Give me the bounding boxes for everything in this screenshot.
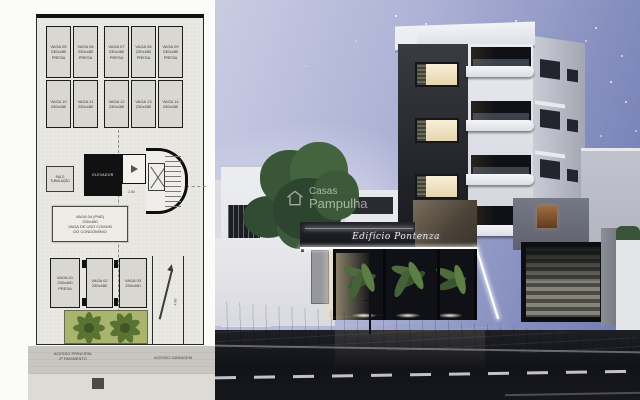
glass-storefront — [333, 249, 477, 320]
bronze-light-fixture — [537, 206, 557, 228]
sidewalk-marker — [92, 378, 104, 389]
stall-label-line: PRESA — [110, 55, 124, 60]
stall-label-line: PRESA — [52, 55, 66, 60]
parking-stall: VAGA 10230x480 — [46, 80, 71, 128]
stall-label-line: PRESA — [58, 286, 72, 291]
side-ledge — [535, 150, 565, 158]
parking-stall: VAGA 07230x480PRESA — [104, 26, 129, 78]
watermark-line2: Pampulha — [309, 197, 368, 210]
side-window — [540, 109, 560, 130]
stall-label-line: 230x480 — [78, 104, 93, 109]
stall-label-line: PRESA — [164, 55, 178, 60]
parking-stall: VAGA 01230x480PRESA — [50, 258, 80, 308]
stall-label-line: 230x480 — [136, 104, 151, 109]
listing-image: VAGA 05230x480PRESAVAGA 06230x480PRESAVA… — [0, 0, 640, 400]
glass-railing — [473, 167, 529, 174]
parking-row-top: VAGA 05230x480PRESAVAGA 06230x480PRESAVA… — [46, 26, 186, 78]
wall-glow — [321, 250, 333, 320]
side-window — [567, 119, 578, 133]
side-window — [567, 69, 578, 83]
pne-stall-note: VAGA 04 (PNE)230x480VAGA DE USO COMUMDO … — [52, 206, 128, 242]
sapling-stake — [365, 300, 374, 301]
window-louver — [417, 120, 426, 141]
ramp-dimension: 4.80 — [174, 299, 178, 306]
stall-label-line: 230x480 — [92, 283, 107, 288]
parking-stall: VAGA 02230x480 — [86, 258, 113, 308]
side-window — [540, 59, 560, 80]
palm-plant — [355, 263, 358, 266]
window-louver — [417, 64, 426, 85]
access-main-line2: 2º PAVIMENTO — [38, 356, 108, 361]
stall-label-line: 230x480 — [109, 104, 124, 109]
balcony-slab — [466, 120, 534, 131]
parking-stall: VAGA 05230x480PRESA — [46, 26, 71, 78]
side-window — [567, 169, 578, 183]
balcony-slab — [466, 66, 534, 77]
stall-label-line: 230x480 — [163, 104, 178, 109]
lit-window — [415, 174, 459, 199]
stair-dimension: 2.80 — [128, 190, 135, 194]
stall-label-line: PRESA — [79, 55, 93, 60]
boundary-wall-right — [616, 240, 640, 332]
parking-stall: VAGA 13230x480 — [131, 80, 156, 128]
uplight — [437, 313, 463, 318]
palm-plant — [445, 265, 448, 268]
parking-stall: VAGA 09230x480PRESA — [158, 26, 183, 78]
garden-plants-illustration — [65, 311, 149, 345]
mullion — [333, 249, 336, 320]
street-sapling — [369, 292, 371, 334]
elevator-shaft: ELEVADOR — [84, 154, 122, 196]
stall-label-line: 230x480 — [125, 283, 140, 288]
column — [82, 298, 86, 306]
side-ledge — [535, 100, 565, 108]
stars — [395, 15, 397, 17]
window-louver — [417, 176, 426, 197]
stair-treads — [165, 155, 181, 207]
lit-window — [415, 118, 459, 143]
parking-stall: VAGA 03230x480 — [119, 258, 147, 308]
mullion — [383, 249, 386, 320]
mullion — [437, 249, 440, 320]
column — [114, 298, 118, 306]
parking-row-bottom: VAGA 01230x480PRESAVAGA 02230x480VAGA 03… — [50, 258, 154, 308]
balcony-slab — [466, 174, 534, 185]
street-area-plan — [28, 374, 215, 400]
column — [114, 260, 118, 268]
building-render-panel: Edifício Pontenza — [215, 0, 640, 400]
stair-cross-box — [148, 163, 165, 191]
building-name-sign: Edifício Pontenza — [333, 232, 459, 242]
utility-label: RALO TUBULAÇÃO — [47, 175, 73, 183]
garage-shadow — [526, 247, 600, 281]
stall-label-line: PRESA — [137, 55, 151, 60]
led-strip-upper — [305, 228, 413, 229]
utility-box: RALO TUBULAÇÃO — [46, 166, 74, 192]
glass-railing — [473, 113, 529, 120]
parking-stall: VAGA 12230x480 — [104, 80, 129, 128]
pne-note-line: DO CONDOMÍNIO — [73, 229, 107, 234]
stall-label-line: 230x480 — [51, 104, 66, 109]
watermark: Casas Pampulha — [285, 186, 368, 210]
side-window — [540, 159, 560, 180]
elevator-label: ELEVADOR — [92, 173, 113, 177]
palm-plant — [403, 259, 406, 262]
glass-railing — [473, 59, 529, 66]
parking-row-second: VAGA 10230x480VAGA 11230x480VAGA 12230x4… — [46, 80, 186, 128]
garden-area — [64, 310, 148, 344]
dashed-line-h — [186, 186, 206, 187]
floor-plan-panel: VAGA 05230x480PRESAVAGA 06230x480PRESAVA… — [0, 0, 215, 400]
parking-stall: VAGA 06230x480PRESA — [73, 26, 98, 78]
access-garage-label: ACESSO GARAGEM — [143, 355, 203, 360]
access-main-label: ACESSO PRINCIPAL 2º PAVIMENTO — [38, 351, 108, 361]
plan-triangle-symbol — [131, 165, 138, 173]
parking-stall: VAGA 08230x480PRESA — [131, 26, 156, 78]
elevator-lobby — [122, 154, 146, 184]
mullion — [474, 249, 477, 320]
house-logo-icon — [285, 188, 305, 208]
parking-stall: VAGA 14230x480 — [158, 80, 183, 128]
column — [82, 260, 86, 268]
parking-stall: VAGA 11230x480 — [73, 80, 98, 128]
lit-window — [415, 62, 459, 87]
